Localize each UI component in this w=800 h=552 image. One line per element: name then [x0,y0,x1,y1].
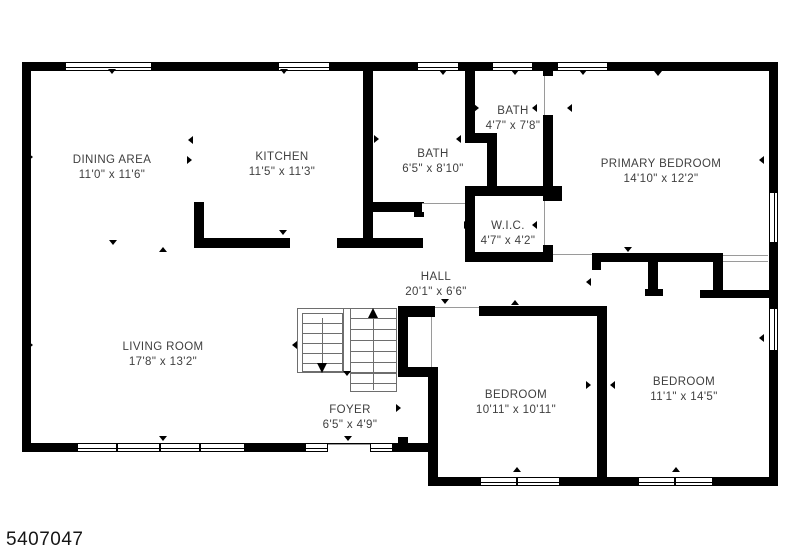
window [769,308,778,351]
room-boundary-tick [159,247,167,252]
room-name: W.I.C. [481,219,536,234]
room-boundary-tick [28,153,33,161]
room-dimensions: 11'0" x 11'6" [73,168,152,183]
room-label: BATH6'5" x 8'10" [402,147,463,177]
room-boundary-tick [567,104,572,112]
room-name: HALL [405,270,466,285]
window [675,477,713,486]
wall [428,367,438,477]
room-boundary-tick [464,221,469,229]
door-opening [553,254,592,262]
wall [398,367,430,377]
stair-direction-arrow-icon [317,363,327,373]
room-boundary-tick [610,381,615,389]
room-boundary-tick [396,404,401,412]
window [417,62,459,71]
room-name: BEDROOM [650,375,717,390]
room-name: PRIMARY BEDROOM [601,157,722,172]
room-dimensions: 6'5" x 4'9" [323,418,378,433]
window [117,443,160,452]
stair-rail [350,308,351,373]
room-dimensions: 11'1" x 14'5" [650,390,717,405]
room-dimensions: 20'1" x 6'6" [405,285,466,300]
room-name: FOYER [323,403,378,418]
window [638,477,675,486]
room-boundary-tick [456,135,461,143]
room-name: BATH [402,147,463,162]
stair-direction-arrow-icon [368,308,378,318]
room-label: BEDROOM10'11" x 10'11" [476,388,556,418]
room-name: KITCHEN [249,150,316,165]
room-boundary-tick [374,135,379,143]
room-boundary-tick [280,69,288,74]
room-label: PRIMARY BEDROOM14'10" x 12'2" [601,157,722,187]
wall [700,290,778,298]
wall [337,238,423,248]
room-label: FOYER6'5" x 4'9" [323,403,378,433]
room-boundary-tick [511,70,519,75]
door-opening [431,317,433,367]
stair-rail [322,318,323,366]
door-opening [328,444,370,452]
room-label: BATH4'7" x 7'8" [486,104,541,134]
room-boundary-tick [511,300,519,305]
stair-rail [343,308,344,373]
room-boundary-tick [624,247,632,252]
door-opening [723,255,768,262]
room-boundary-tick [586,278,591,286]
wall [543,186,562,201]
room-boundary-tick [759,334,764,342]
room-label: LIVING ROOM17'8" x 13'2" [122,340,203,370]
room-boundary-tick [759,156,764,164]
room-name: LIVING ROOM [122,340,203,355]
wall [194,238,290,248]
room-dimensions: 4'7" x 7'8" [486,119,541,134]
room-boundary-tick [474,104,479,112]
room-label: DINING AREA11'0" x 11'6" [73,153,152,183]
room-dimensions: 6'5" x 8'10" [402,162,463,177]
wall [592,253,601,270]
room-boundary-tick [344,436,352,441]
room-dimensions: 17'8" x 13'2" [122,355,203,370]
room-dimensions: 11'5" x 11'3" [249,165,316,180]
room-label: BEDROOM11'1" x 14'5" [650,375,717,405]
window [769,192,778,243]
room-boundary-tick [343,371,351,376]
room-label: HALL20'1" x 6'6" [405,270,466,300]
wall [22,62,31,452]
room-boundary-tick [188,136,193,144]
wall [592,253,723,262]
door-opening [422,203,465,212]
door-opening [544,76,552,115]
wall [713,262,723,290]
door-opening [435,307,479,316]
room-boundary-tick [292,341,297,349]
window [160,443,200,452]
room-boundary-tick [586,381,591,389]
window [370,443,393,452]
room-boundary-tick [159,436,167,441]
room-label: KITCHEN11'5" x 11'3" [249,150,316,180]
wall [398,437,408,452]
room-name: DINING AREA [73,153,152,168]
wall [543,115,553,186]
listing-id-watermark: 5407047 [6,529,83,551]
window [305,443,328,452]
room-dimensions: 14'10" x 12'2" [601,172,722,187]
room-boundary-tick [439,70,447,75]
wall [543,245,553,262]
room-boundary-tick [28,341,33,349]
room-name: BATH [486,104,541,119]
floor-plan: 5407047 DINING AREA11'0" x 11'6"KITCHEN1… [0,0,800,552]
window [517,477,560,486]
room-boundary-tick [109,240,117,245]
window [480,477,517,486]
wall [465,62,475,143]
wall [597,306,607,477]
room-label: W.I.C.4'7" x 4'2" [481,219,536,249]
window [200,443,245,452]
wall [363,62,373,248]
stair-rail [373,316,374,390]
wall [465,186,553,196]
room-name: BEDROOM [476,388,556,403]
wall [543,62,553,76]
room-dimensions: 10'11" x 10'11" [476,403,556,418]
room-boundary-tick [672,467,680,472]
wall [465,252,553,262]
wall [479,306,597,316]
room-boundary-tick [279,230,287,235]
wall [645,289,663,296]
room-boundary-tick [187,156,192,164]
wall [769,62,778,486]
door-opening [544,201,552,245]
room-boundary-tick [579,70,587,75]
window [77,443,117,452]
room-boundary-tick [108,69,116,74]
room-boundary-tick [513,467,521,472]
room-dimensions: 4'7" x 4'2" [481,234,536,249]
room-boundary-tick [654,71,662,76]
